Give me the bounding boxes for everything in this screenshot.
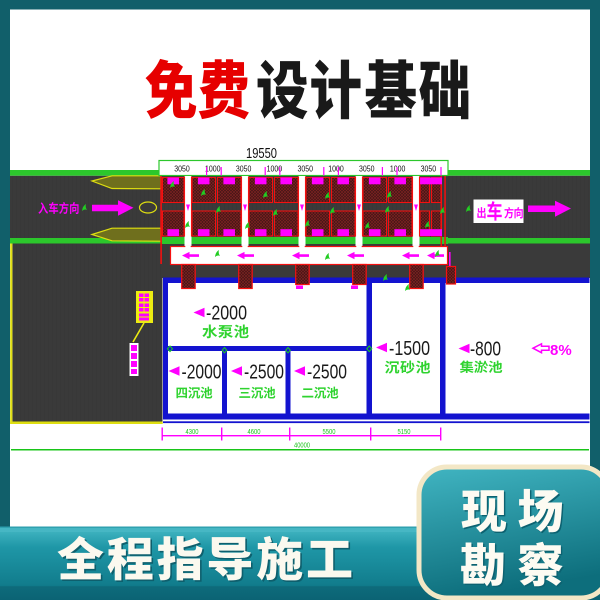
svg-text:-800: -800	[470, 338, 501, 361]
svg-text:-2000: -2000	[206, 302, 247, 325]
svg-text:3050: 3050	[421, 165, 437, 174]
svg-text:4600: 4600	[248, 429, 261, 436]
svg-text:5500: 5500	[323, 429, 336, 436]
svg-text:3050: 3050	[236, 165, 252, 174]
svg-text:-1500: -1500	[389, 337, 430, 360]
svg-text:1000: 1000	[205, 165, 221, 174]
svg-text:19550: 19550	[246, 146, 277, 162]
svg-text:-2500: -2500	[244, 361, 284, 384]
svg-text:4300: 4300	[186, 429, 199, 436]
svg-text:3050: 3050	[297, 165, 313, 174]
svg-text:3050: 3050	[359, 165, 375, 174]
svg-text:3050: 3050	[174, 165, 190, 174]
svg-text:-2000: -2000	[182, 361, 222, 384]
svg-text:1000: 1000	[390, 165, 406, 174]
svg-text:40000: 40000	[294, 443, 310, 450]
svg-text:-2500: -2500	[307, 361, 347, 384]
svg-text:8%: 8%	[550, 342, 572, 359]
svg-text:5150: 5150	[398, 429, 411, 436]
svg-text:1000: 1000	[328, 165, 344, 174]
